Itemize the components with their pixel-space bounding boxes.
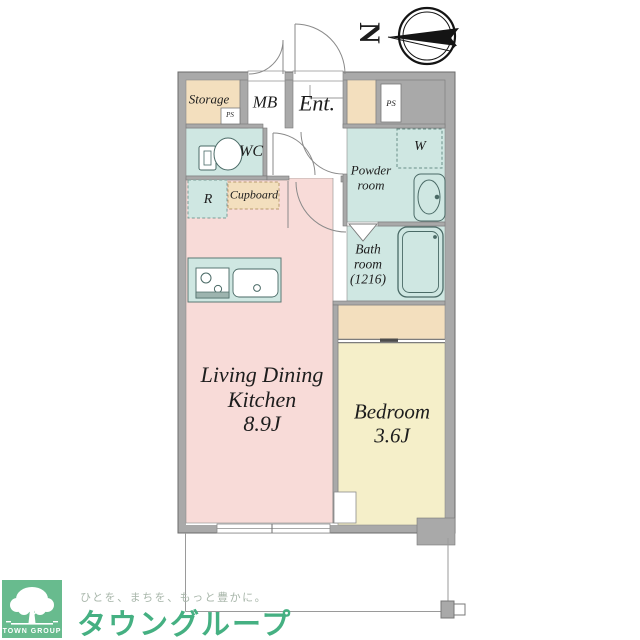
compass-icon: [388, 8, 459, 64]
closet: [338, 305, 445, 339]
hallway: [267, 128, 343, 178]
pipe-space-label: PS: [386, 99, 395, 109]
cupboard-label: Cupboard: [230, 188, 278, 201]
powder-room-label: Powder room: [351, 163, 391, 192]
town-group-logo: TOWN GROUP: [2, 580, 62, 638]
floorplan-page: Storage PS MB Ent. PS WC Powder room W R…: [0, 0, 640, 640]
entry-side-strip: [347, 80, 376, 124]
meter-box-label: MB: [253, 92, 278, 111]
storage-label: Storage: [189, 93, 229, 108]
kitchen-sink-icon: [233, 269, 278, 297]
bedroom-label: Bedroom 3.6J: [354, 400, 430, 447]
compass-north-label: N: [352, 22, 386, 44]
ldk-label: Living Dining Kitchen 8.9J: [201, 363, 324, 437]
wc-label: WC: [239, 143, 263, 161]
kitchen-counter: [188, 258, 281, 302]
entrance-label: Ent.: [299, 92, 335, 117]
bedroom-door-pocket: [334, 492, 356, 523]
brand-name: タウングループ: [77, 601, 292, 640]
balcony-partition: [441, 601, 454, 618]
logo-caption: TOWN GROUP: [2, 628, 62, 635]
storage-ps-label: PS: [226, 112, 234, 120]
stove-icon: [196, 268, 229, 298]
entrance-door: [295, 24, 345, 74]
ldk-room: [186, 178, 333, 523]
refrigerator-label: R: [204, 192, 213, 208]
washer-label: W: [414, 139, 426, 155]
meter-box-door: [249, 40, 283, 74]
bathroom-label: Bath room (1216): [350, 241, 386, 286]
